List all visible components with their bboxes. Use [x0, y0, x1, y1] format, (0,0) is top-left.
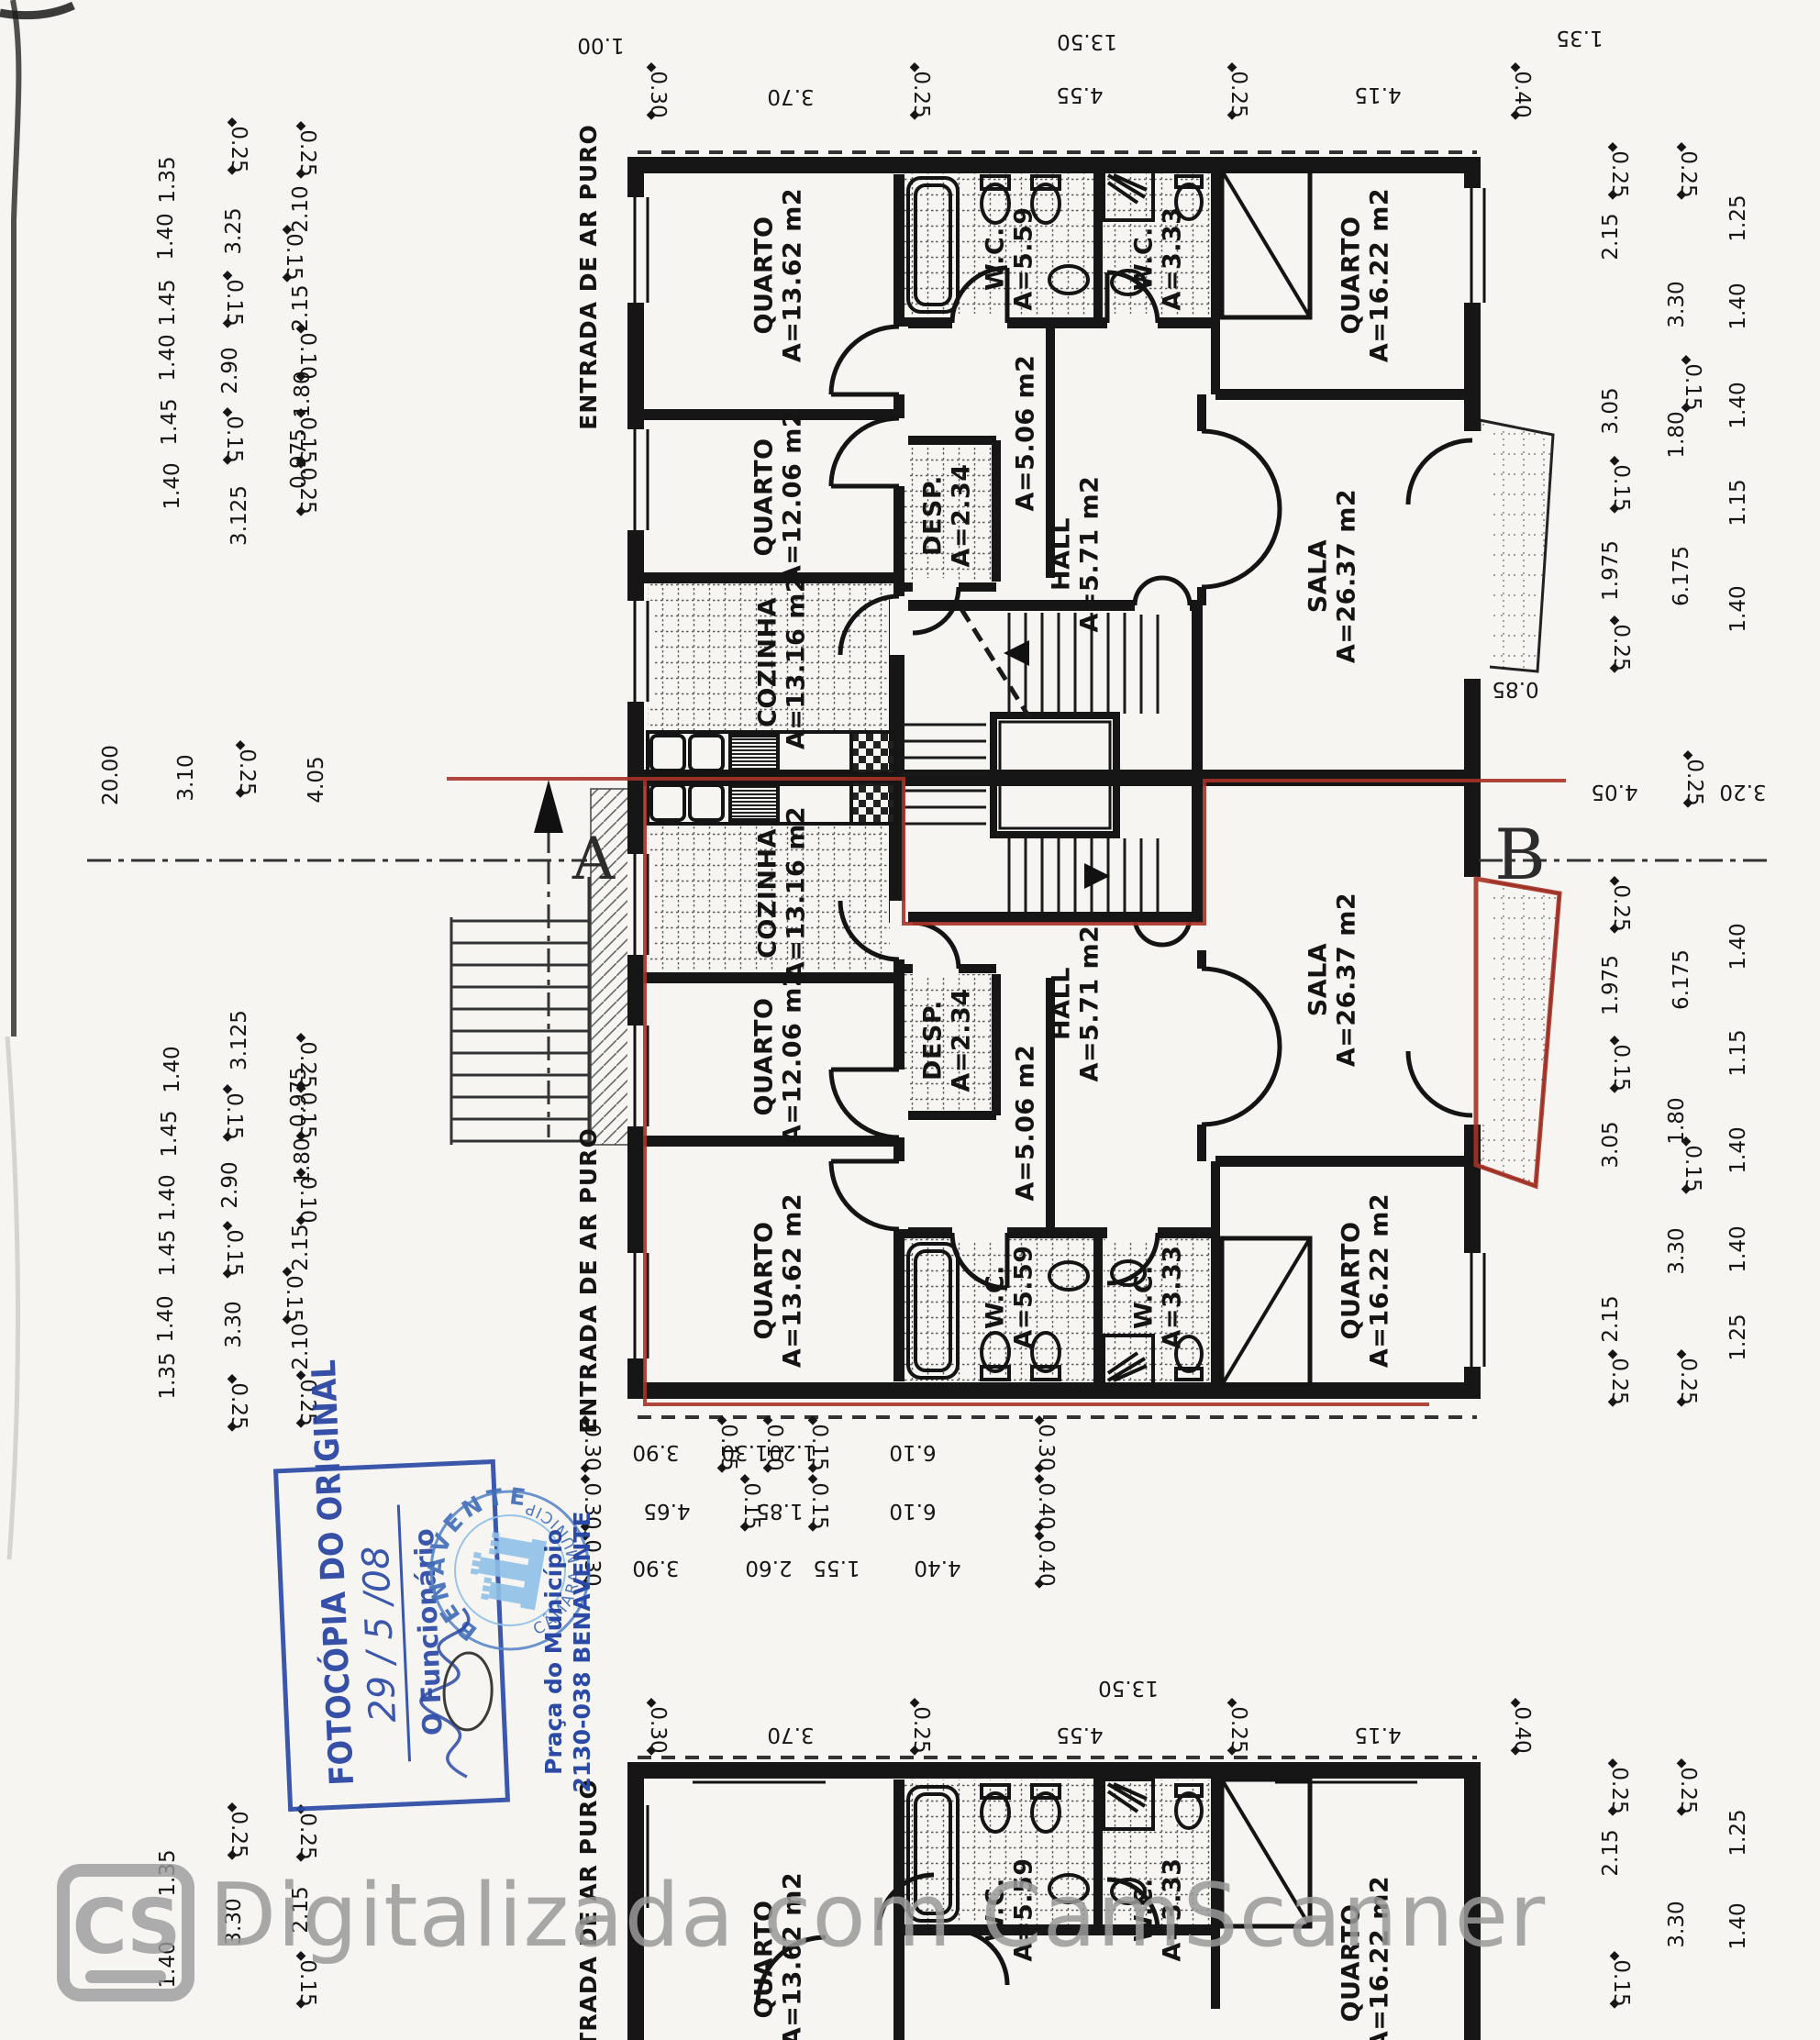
dim-tick-icon: ◆: [1610, 501, 1620, 516]
dim-tick-icon: ◆: [1608, 1756, 1618, 1770]
dim-tick-icon: ◆: [1610, 453, 1620, 468]
dim-tick-icon: ◆: [1511, 1743, 1521, 1757]
dim-tick-icon: ◆: [1677, 1803, 1687, 1818]
dim-label: 3.90: [632, 1556, 679, 1580]
dim-label: 6.10: [889, 1440, 936, 1464]
dim-label: 0.85: [1492, 677, 1538, 701]
room-label: COZINHAA=13.16 m2: [753, 806, 810, 981]
room-label: SALAA=26.37 m2: [1304, 892, 1360, 1067]
dim-label: 2.15: [1599, 1829, 1623, 1876]
dim-tick-icon: ◆: [647, 1695, 657, 1710]
dim-label: 1.00: [577, 33, 624, 57]
dim-tick-icon: ◆: [1610, 1033, 1620, 1048]
dim-label: 3.25: [222, 207, 246, 254]
dim-label: 1.40: [154, 213, 178, 260]
dim-tick-icon: ◆: [227, 1419, 238, 1434]
dim-tick-icon: ◆: [740, 1471, 750, 1486]
dim-label: 1.80: [291, 1137, 315, 1184]
dim-label: 3.70: [767, 84, 814, 108]
dim-tick-icon: ◆: [223, 316, 233, 330]
dim-label: 4.40: [914, 1556, 960, 1580]
floor-plan: A B QUARTOA=13.62 m2QUARTOA=12.06 m2COZI…: [0, 0, 1820, 2040]
dim-label: 1.35: [156, 156, 180, 203]
dim-label: 4.15: [1354, 1723, 1401, 1746]
dim-tick-icon: ◆: [910, 60, 920, 74]
dim-tick-icon: ◆: [1227, 1695, 1237, 1710]
dim-label: 2.60: [745, 1556, 792, 1580]
dim-label: 1.40: [1726, 923, 1750, 970]
dim-label: 1.40: [1726, 1902, 1750, 1949]
dim-tick-icon: ◆: [296, 456, 306, 471]
room-label: SALAA=26.37 m2: [1304, 489, 1360, 663]
dim-label: 4.55: [1056, 1723, 1103, 1746]
dim-label: 6.175: [1670, 546, 1693, 606]
dim-label: 2.90: [218, 1161, 242, 1208]
dim-label: 2.90: [218, 347, 242, 394]
dim-label: 2.15: [1599, 213, 1623, 260]
dim-tick-icon: ◆: [1035, 1413, 1045, 1427]
dim-tick-icon: ◆: [1683, 795, 1693, 810]
dim-label: 6.10: [889, 1499, 936, 1523]
room-label: A=5.06 m2: [1011, 355, 1039, 512]
dim-label: 3.10: [174, 754, 198, 801]
dim-label: 1.35: [1556, 26, 1603, 50]
dim-label: 1.45: [158, 398, 182, 445]
room-label: QUARTOA=13.62 m2: [749, 1193, 806, 1368]
dim-tick-icon: ◆: [223, 1129, 233, 1144]
dim-label: 3.05: [1599, 1121, 1623, 1168]
dim-tick-icon: ◆: [581, 1576, 591, 1591]
room-label: QUARTOA=13.62 m2: [749, 1872, 806, 2040]
dim-tick-icon: ◆: [1511, 107, 1521, 122]
dim-label: 3.05: [1599, 387, 1623, 434]
dim-tick-icon: ◆: [296, 405, 306, 420]
dim-tick-icon: ◆: [236, 785, 246, 800]
dim-label: 3.30: [222, 1898, 246, 1945]
dim-tick-icon: ◆: [296, 1996, 306, 2011]
dim-label: 1.40: [156, 334, 180, 381]
dim-label: 1.40: [154, 1295, 178, 1342]
dim-tick-icon: ◆: [1677, 187, 1687, 202]
dim-tick-icon: ◆: [227, 162, 238, 177]
dim-tick-icon: ◆: [1677, 1756, 1687, 1770]
room-label: QUARTOA=13.62 m2: [749, 188, 806, 362]
dim-tick-icon: ◆: [647, 60, 657, 74]
dim-tick-icon: ◆: [910, 1695, 920, 1710]
dim-tick-icon: ◆: [1677, 1394, 1687, 1409]
dim-label: 1.40: [156, 1174, 180, 1221]
dim-tick-icon: ◆: [1608, 1394, 1618, 1409]
dim-label: 3.125: [227, 1010, 251, 1070]
dim-label: 1.15: [1726, 1029, 1750, 1076]
dim-label: 1.40: [1726, 1225, 1750, 1272]
dim-tick-icon: ◆: [808, 1471, 818, 1486]
dim-label: 3.70: [767, 1723, 814, 1746]
dim-label: 4.65: [643, 1499, 690, 1523]
dim-tick-icon: ◆: [283, 1312, 293, 1326]
room-label: QUARTOA=16.22 m2: [1337, 188, 1393, 362]
dim-tick-icon: ◆: [296, 1030, 306, 1045]
dim-tick-icon: ◆: [1610, 1081, 1620, 1095]
dim-tick-icon: ◆: [283, 222, 293, 237]
dim-label: 2.15: [289, 1886, 313, 1933]
dim-label: 2.10: [289, 185, 313, 232]
dim-label: 3.30: [1665, 1901, 1689, 1947]
dim-tick-icon: ◆: [296, 1213, 306, 1227]
dim-tick-icon: ◆: [223, 452, 233, 467]
dim-label: 4.05: [305, 756, 328, 803]
dim-tick-icon: ◆: [283, 270, 293, 284]
dim-tick-icon: ◆: [227, 1800, 238, 1814]
dim-label: 2.15: [289, 1224, 313, 1270]
dim-label: 1.975: [1599, 955, 1623, 1015]
dim-label: 1.25: [1726, 194, 1750, 241]
dim-label: 1.45: [158, 1110, 182, 1157]
dim-tick-icon: ◆: [647, 1743, 657, 1757]
section-marker-b: B: [1494, 814, 1546, 895]
dim-label: 1.35: [156, 1352, 180, 1399]
dim-tick-icon: ◆: [740, 1519, 750, 1534]
entrada-label: ENTRADA DE AR PURO: [575, 124, 602, 429]
dim-label: 1.40: [161, 1046, 184, 1092]
dim-label: 3.20: [1719, 780, 1766, 804]
dim-tick-icon: ◆: [647, 107, 657, 122]
dim-tick-icon: ◆: [1035, 1528, 1045, 1543]
dim-label: 1.25: [1726, 1314, 1750, 1360]
dim-tick-icon: ◆: [1227, 107, 1237, 122]
dim-tick-icon: ◆: [1227, 60, 1237, 74]
dim-label: 13.50: [1057, 29, 1117, 53]
dim-tick-icon: ◆: [1677, 139, 1687, 154]
dim-label: 1.45: [156, 1229, 180, 1276]
dim-label: 1.40: [161, 462, 184, 509]
section-marker-a: A: [572, 826, 616, 893]
dim-label: 1.15: [1726, 479, 1750, 526]
dim-tick-icon: ◆: [227, 1371, 238, 1386]
dim-tick-icon: ◆: [1608, 187, 1618, 202]
dim-label: 4.15: [1354, 83, 1401, 106]
dim-tick-icon: ◆: [1610, 1996, 1620, 2011]
dim-label: 1.40: [1726, 1126, 1750, 1173]
dim-tick-icon: ◆: [1608, 139, 1618, 154]
dim-tick-icon: ◆: [223, 1266, 233, 1281]
dim-tick-icon: ◆: [223, 405, 233, 419]
dim-tick-icon: ◆: [581, 1528, 591, 1543]
dim-tick-icon: ◆: [1608, 1347, 1618, 1361]
dim-tick-icon: ◆: [236, 737, 246, 752]
dim-tick-icon: ◆: [1610, 1948, 1620, 1963]
dim-tick-icon: ◆: [296, 1078, 306, 1092]
dim-tick-icon: ◆: [1227, 1743, 1237, 1757]
dim-tick-icon: ◆: [1610, 660, 1620, 675]
dim-tick-icon: ◆: [227, 115, 238, 129]
dim-label: 3.30: [222, 1301, 246, 1347]
room-label: QUARTOA=16.22 m2: [1337, 1193, 1393, 1368]
dim-label: 2.15: [1599, 1295, 1623, 1342]
dim-tick-icon: ◆: [296, 504, 306, 518]
dim-label: 1.55: [813, 1556, 860, 1580]
dim-label: 1.80: [1665, 1097, 1689, 1144]
dim-tick-icon: ◆: [296, 118, 306, 133]
dim-tick-icon: ◆: [1610, 873, 1620, 888]
dim-tick-icon: ◆: [1677, 1347, 1687, 1361]
dim-tick-icon: ◆: [227, 1847, 238, 1862]
entrada-label: ENTRADA DE AR PURO: [575, 1127, 602, 1433]
dim-tick-icon: ◆: [808, 1519, 818, 1534]
dim-tick-icon: ◆: [296, 1948, 306, 1963]
dim-tick-icon: ◆: [910, 107, 920, 122]
dim-label: 2.10: [289, 1323, 313, 1369]
dim-tick-icon: ◆: [717, 1413, 727, 1427]
dim-tick-icon: ◆: [1681, 352, 1692, 367]
dim-tick-icon: ◆: [1610, 921, 1620, 936]
dim-label: 4.05: [1591, 780, 1637, 804]
dim-tick-icon: ◆: [296, 321, 306, 336]
dim-tick-icon: ◆: [223, 1218, 233, 1233]
dim-label: 4.55: [1056, 83, 1103, 106]
dim-tick-icon: ◆: [296, 1849, 306, 1864]
dim-tick-icon: ◆: [581, 1471, 591, 1486]
dim-tick-icon: ◆: [1681, 1181, 1692, 1196]
dim-tick-icon: ◆: [223, 268, 233, 283]
dim-tick-icon: ◆: [1683, 748, 1693, 762]
room-label: QUARTOA=12.06 m2: [749, 410, 806, 584]
dim-tick-icon: ◆: [1035, 1576, 1045, 1591]
dim-label: 3.30: [1665, 1227, 1689, 1274]
dim-label: 20.00: [99, 745, 123, 805]
dim-label: 1.40: [1726, 283, 1750, 329]
dim-tick-icon: ◆: [296, 166, 306, 181]
dim-tick-icon: ◆: [910, 1743, 920, 1757]
dim-label: 6.175: [1670, 949, 1693, 1010]
room-label: DESP.A=2.34: [918, 988, 975, 1092]
dim-label: 1.40: [1726, 585, 1750, 632]
dim-tick-icon: ◆: [1035, 1471, 1045, 1486]
room-label: DESP.A=2.34: [918, 463, 975, 567]
dim-label: 13.50: [1098, 1676, 1159, 1700]
dim-label: 1.45: [156, 279, 180, 326]
dim-label: 1.80: [1665, 411, 1689, 458]
room-label: COZINHAA=13.16 m2: [753, 575, 810, 749]
room-label: QUARTOA=16.22 m2: [1337, 1876, 1393, 2040]
dim-tick-icon: ◆: [1608, 1803, 1618, 1818]
entrada-label: ENTRADA DE AR PURO: [575, 1779, 602, 2040]
dim-label: 3.125: [227, 485, 251, 546]
dim-label: 3.90: [632, 1440, 679, 1464]
dim-label: 1.40: [1726, 382, 1750, 428]
dim-tick-icon: ◆: [296, 1415, 306, 1430]
room-label: A=5.06 m2: [1011, 1045, 1039, 1202]
dim-tick-icon: ◆: [808, 1413, 818, 1427]
dim-label: 1.25: [1726, 1809, 1750, 1856]
dim-tick-icon: ◆: [223, 1081, 233, 1096]
dim-tick-icon: ◆: [296, 1128, 306, 1143]
dim-tick-icon: ◆: [1610, 613, 1620, 627]
dim-label: 1.40: [156, 1941, 180, 1988]
room-label: HALLA=5.71 m2: [1047, 926, 1104, 1082]
dim-tick-icon: ◆: [1511, 1695, 1521, 1710]
dim-tick-icon: ◆: [1511, 60, 1521, 74]
dim-tick-icon: ◆: [296, 1802, 306, 1816]
dim-label: 1.30: [721, 1440, 768, 1464]
dim-label: 1.975: [1599, 540, 1623, 601]
room-label: QUARTOA=12.06 m2: [749, 970, 806, 1144]
dim-label: 3.30: [1665, 281, 1689, 327]
dim-tick-icon: ◆: [763, 1413, 773, 1427]
dim-label: 1.85: [756, 1499, 803, 1523]
dim-label: 1.35: [156, 1849, 180, 1896]
